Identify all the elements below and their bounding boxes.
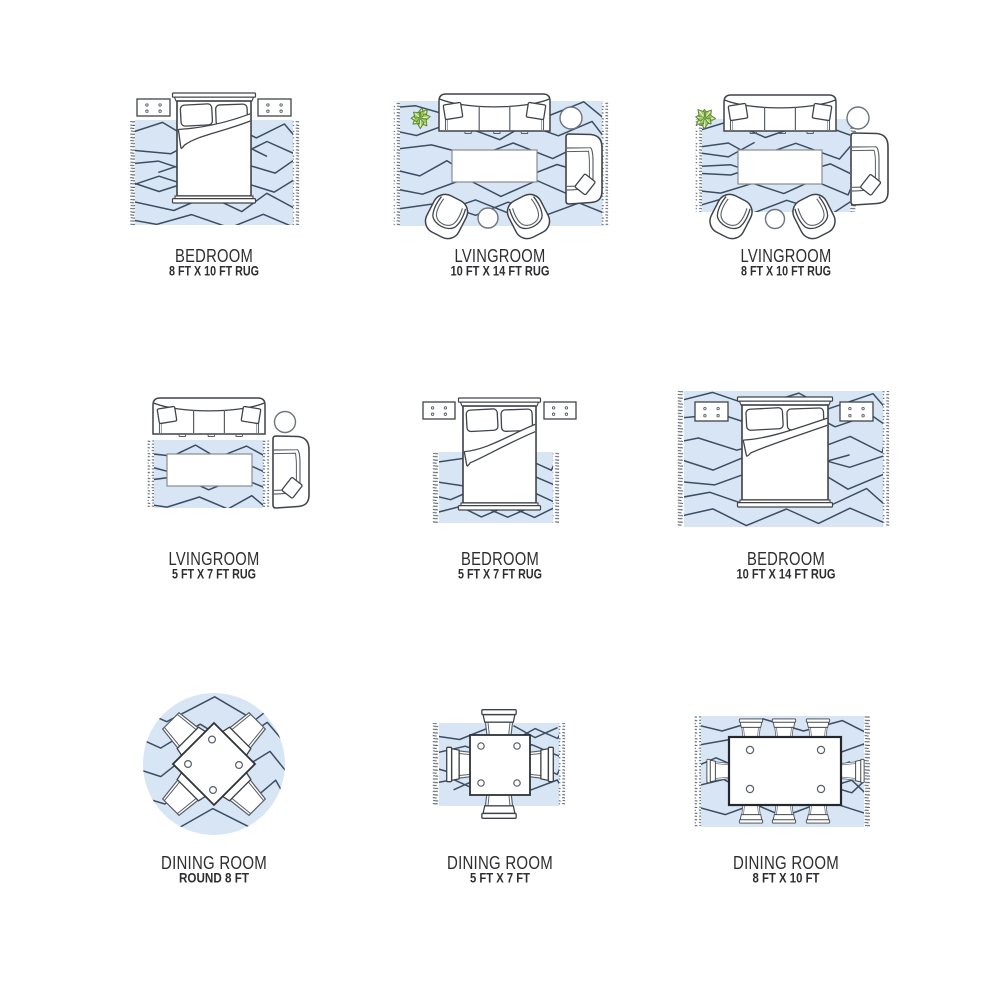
svg-text:8 FT X 10 FT RUG: 8 FT X 10 FT RUG — [741, 264, 831, 279]
svg-text:8 FT X 10 FT: 8 FT X 10 FT — [753, 871, 820, 886]
svg-text:10 FT X 14 FT RUG: 10 FT X 14 FT RUG — [451, 264, 550, 279]
svg-text:5 FT X 7 FT: 5 FT X 7 FT — [470, 871, 530, 886]
svg-text:5 FT X 7 FT RUG: 5 FT X 7 FT RUG — [172, 567, 256, 582]
svg-text:5 FT X 7 FT RUG: 5 FT X 7 FT RUG — [458, 567, 542, 582]
svg-text:ROUND 8 FT: ROUND 8 FT — [179, 871, 249, 886]
svg-text:10 FT X 14 FT RUG: 10 FT X 14 FT RUG — [737, 567, 836, 582]
svg-text:8 FT X 10 FT RUG: 8 FT X 10 FT RUG — [169, 264, 259, 279]
